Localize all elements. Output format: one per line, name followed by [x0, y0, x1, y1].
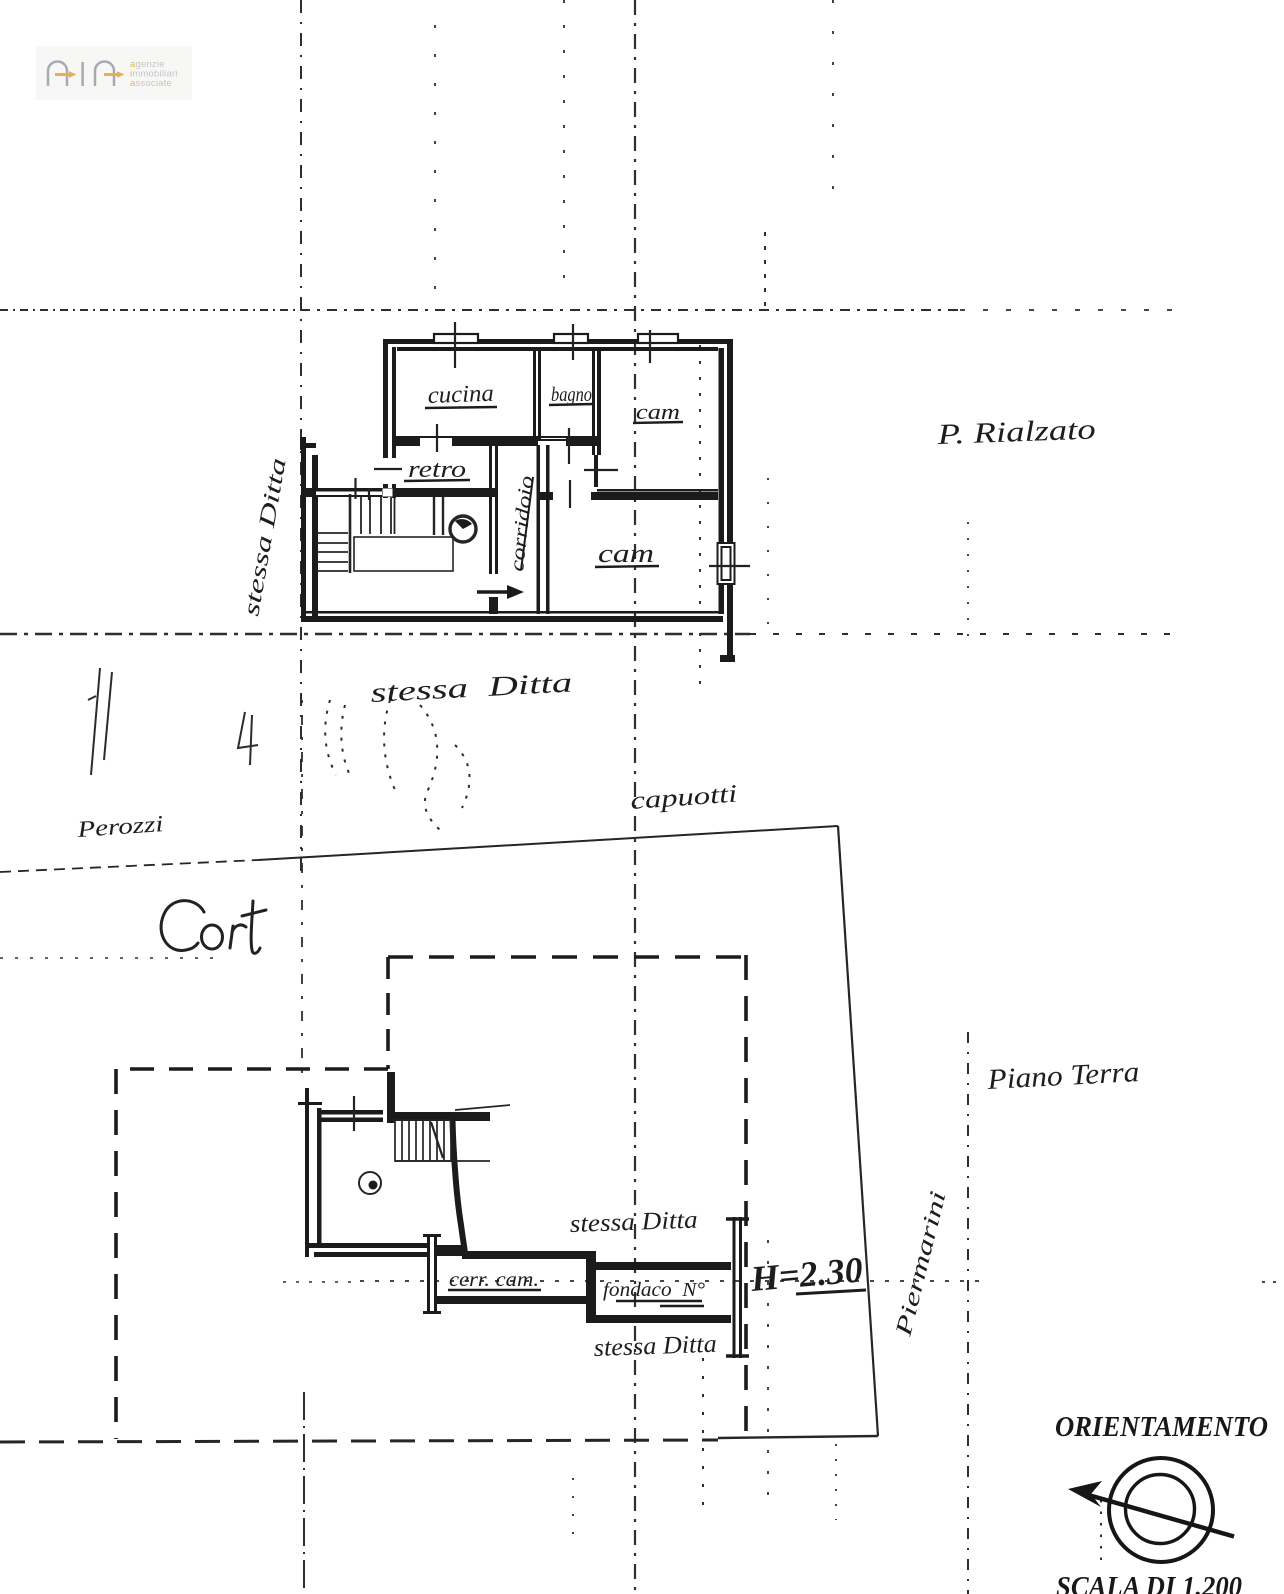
svg-text:cucina: cucina	[427, 381, 494, 409]
svg-text:SCALA DI 1.200: SCALA DI 1.200	[1056, 1572, 1242, 1594]
svg-text:cerr. cam.: cerr. cam.	[449, 1267, 539, 1291]
svg-text:bagno: bagno	[551, 385, 592, 406]
svg-text:fondaco N°: fondaco N°	[603, 1279, 705, 1301]
svg-text:ORIENTAMENTO: ORIENTAMENTO	[1055, 1411, 1268, 1443]
svg-text:stessa Ditta: stessa Ditta	[593, 1331, 717, 1362]
svg-text:cam: cam	[598, 539, 654, 568]
svg-text:stessa Ditta: stessa Ditta	[569, 1207, 698, 1238]
svg-text:cam: cam	[636, 399, 680, 424]
svg-text:P. Rialzato: P. Rialzato	[936, 414, 1096, 452]
svg-text:associate: associate	[130, 78, 172, 89]
